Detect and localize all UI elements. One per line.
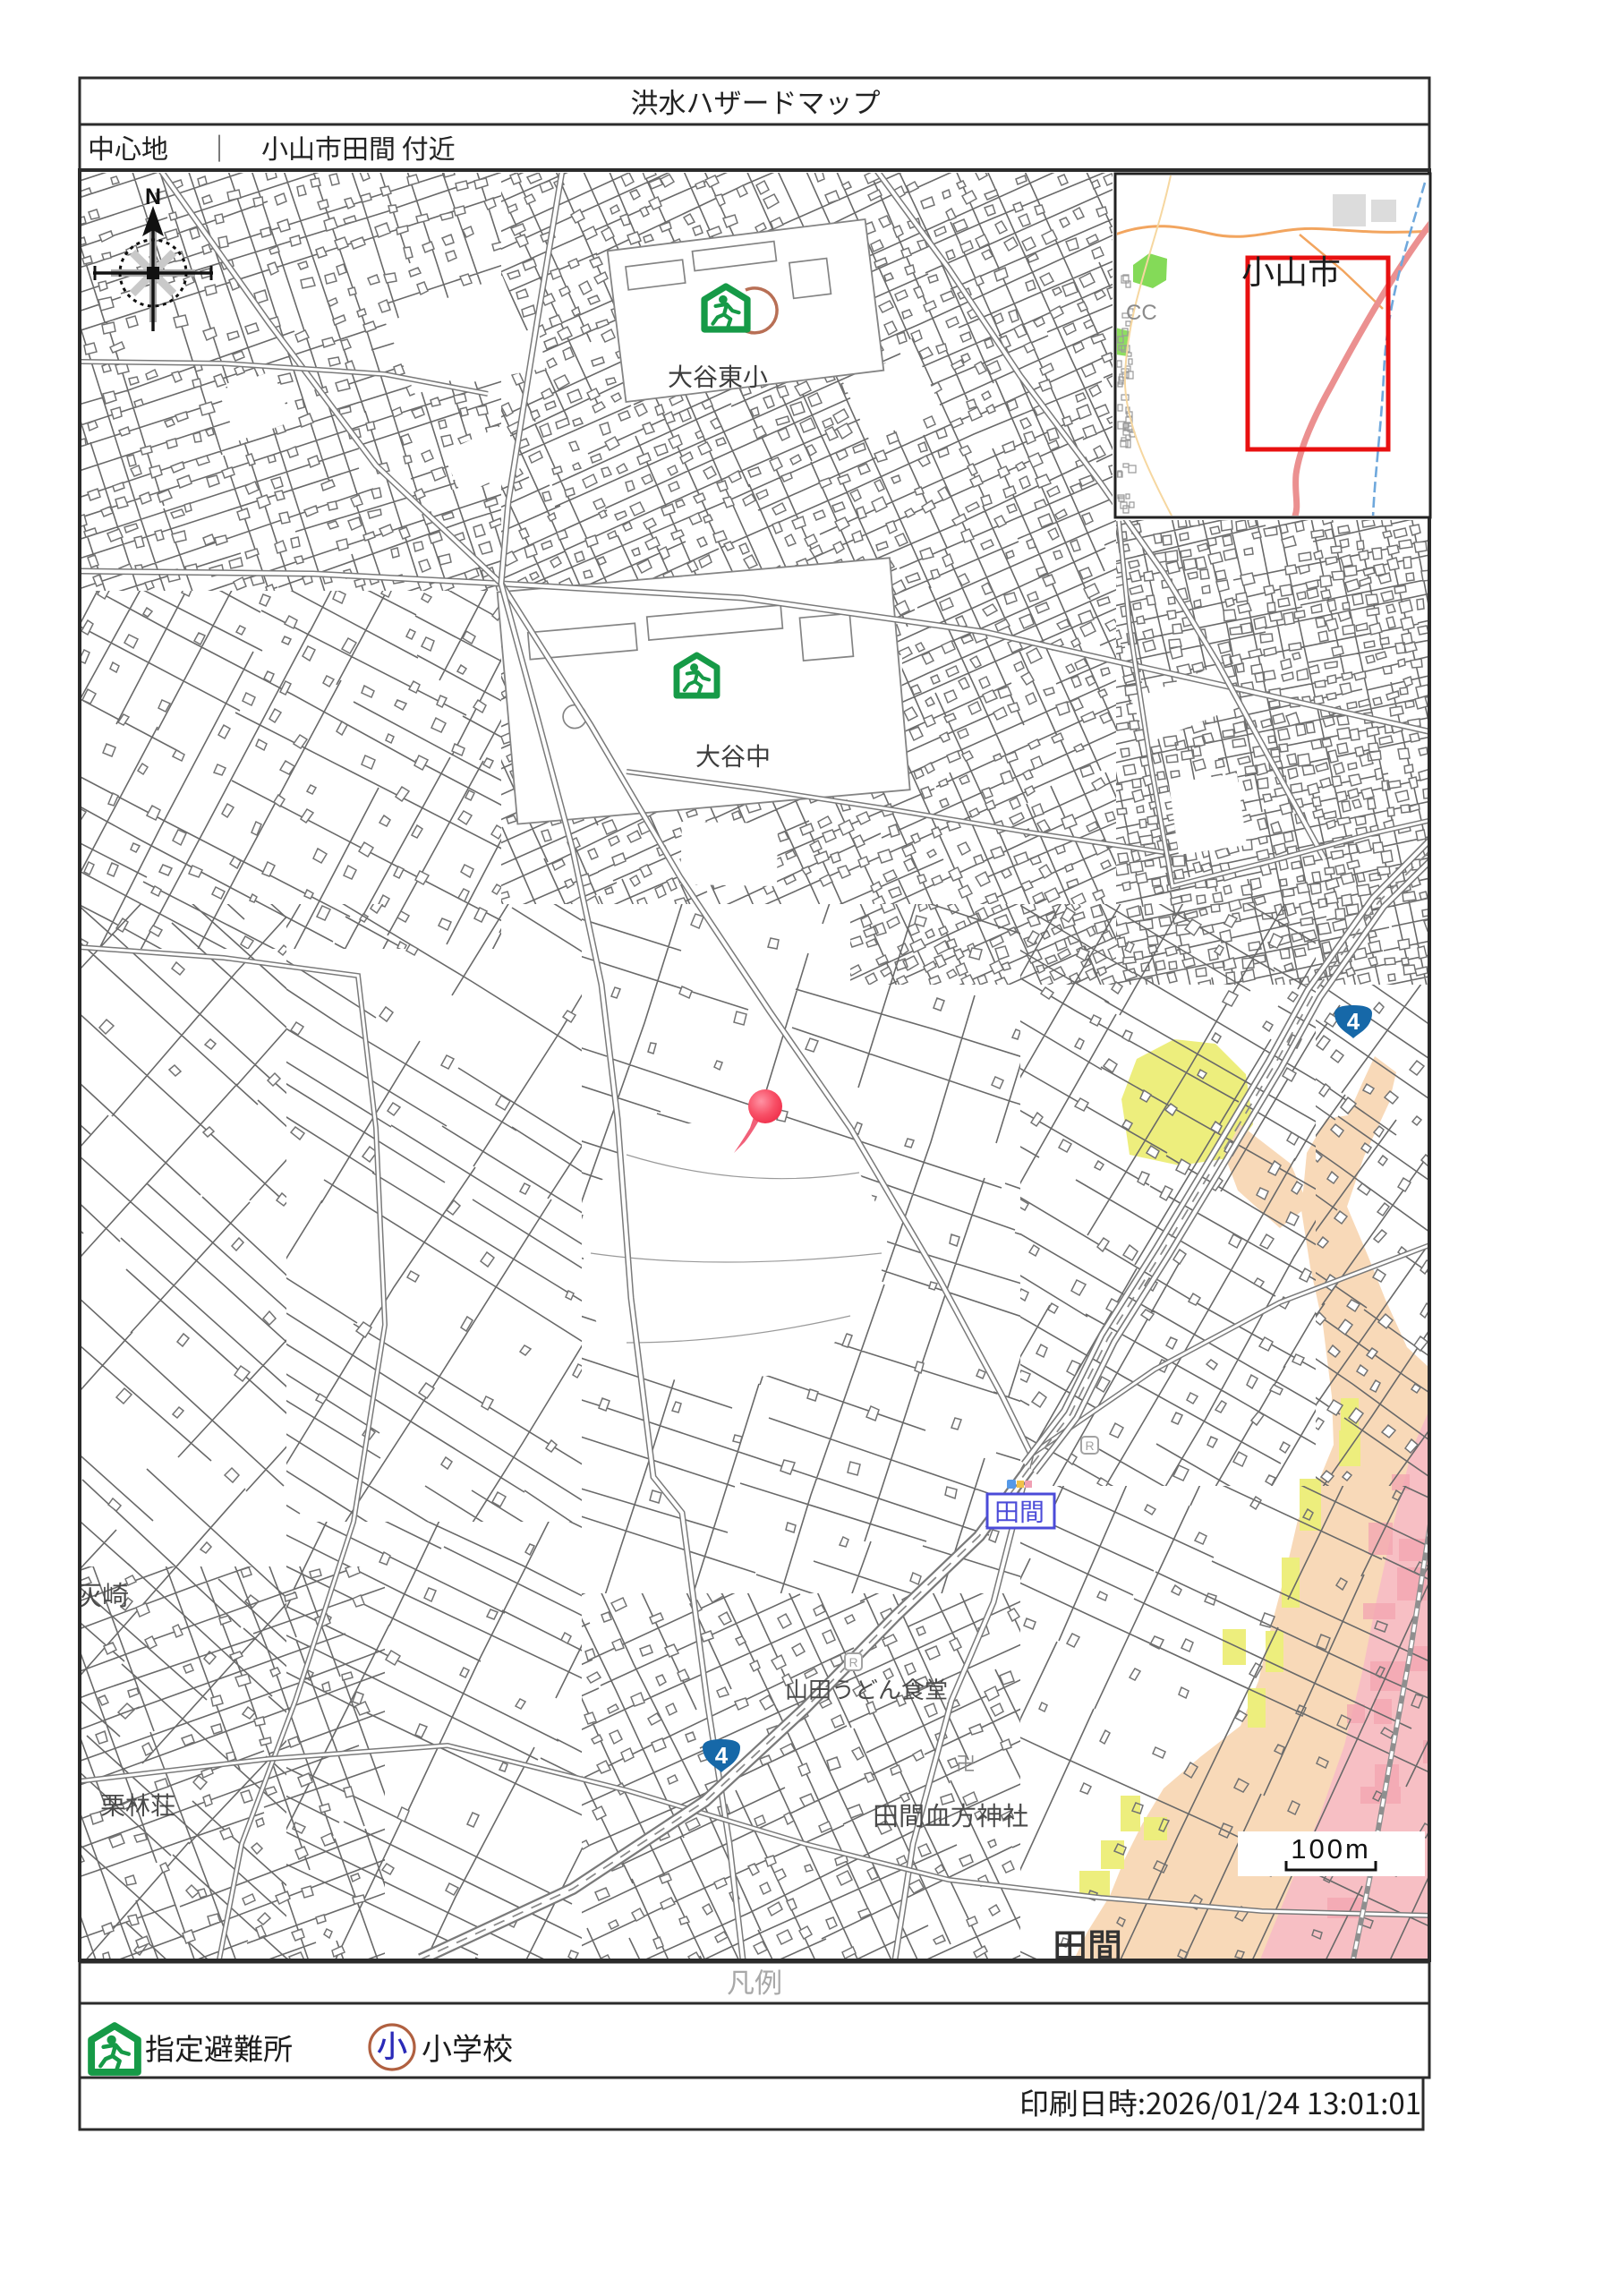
svg-text:100m: 100m	[1291, 1833, 1371, 1865]
svg-text:R: R	[848, 1655, 857, 1669]
svg-text:N: N	[145, 184, 161, 209]
svg-text:4: 4	[1347, 1008, 1360, 1035]
svg-text:CC: CC	[1126, 301, 1157, 325]
svg-text:4: 4	[715, 1742, 729, 1769]
svg-text:R: R	[1085, 1438, 1094, 1453]
